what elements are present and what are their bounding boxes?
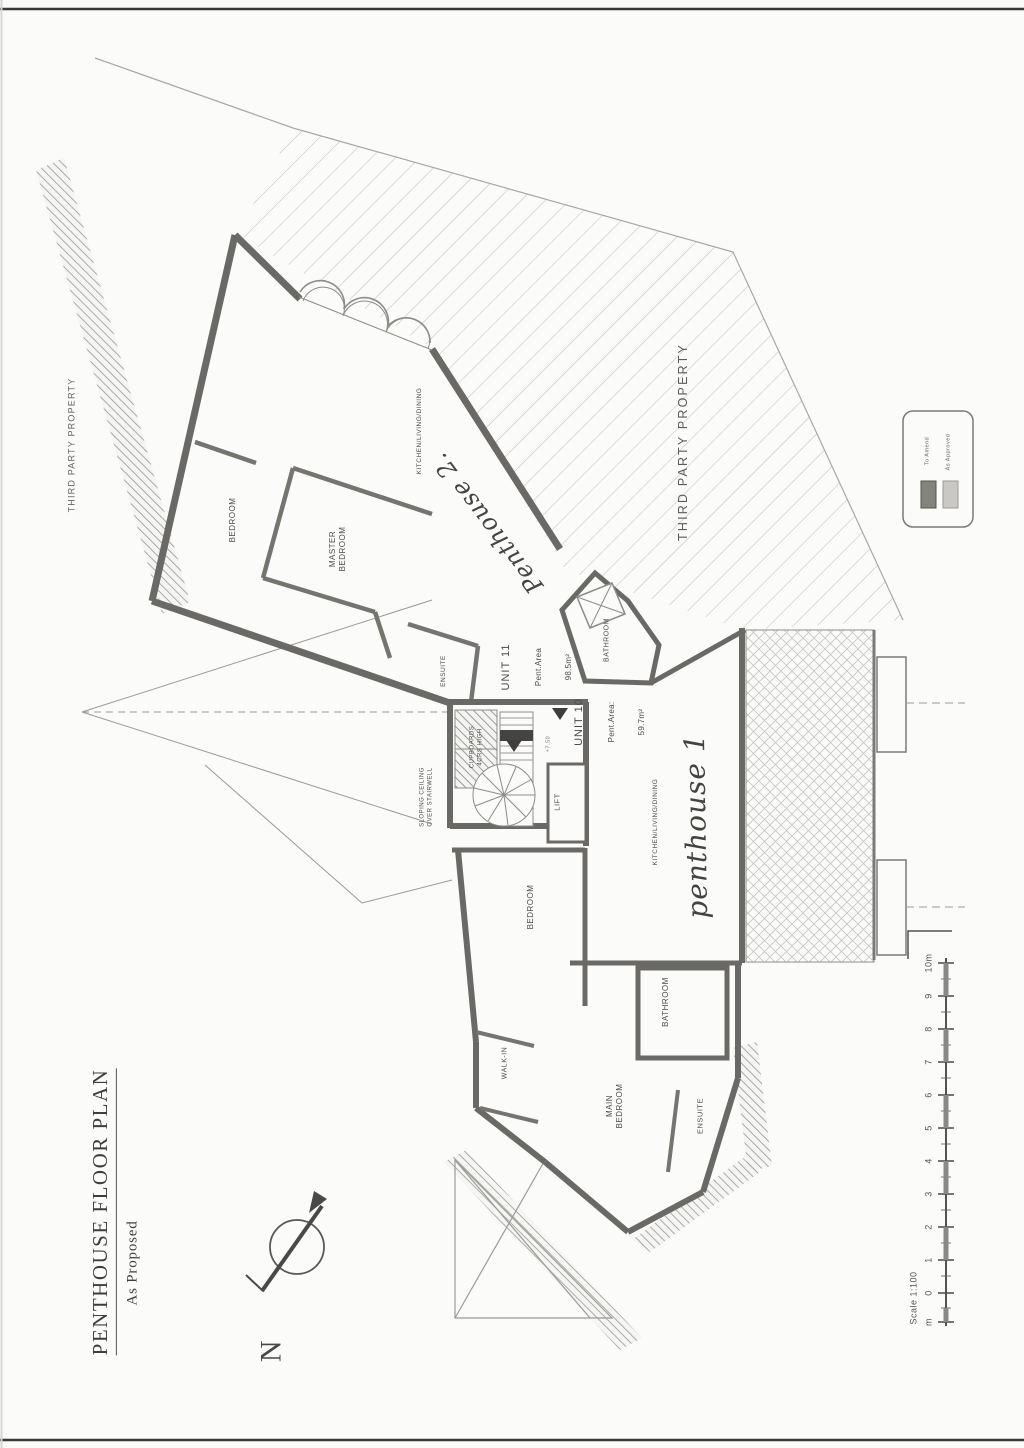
room-label-bathroom-unit10: BATHROOM	[661, 977, 671, 1027]
legend-label-as-approved: As Approved	[946, 434, 953, 471]
scale-tick-m: m	[923, 1318, 934, 1326]
unit10-area-tag: UNIT 10 Pent.Area: 59.7m²	[553, 698, 667, 746]
spiral-stair	[473, 764, 535, 826]
room-label-bedroom-unit10: BEDROOM	[526, 885, 536, 930]
unit11-name: UNIT 11	[500, 644, 514, 691]
scale-tick-8: 8	[923, 1026, 934, 1032]
room-label-kitchen-unit11: KITCHEN/LIVING/DINING	[416, 388, 424, 475]
handwritten-penthouse-1: penthouse 1	[677, 733, 715, 919]
scale-tick-6: 6	[923, 1092, 934, 1098]
unit10-bathroom-walls	[638, 968, 727, 1058]
scanned-floor-plan-sheet: PENTHOUSE FLOOR PLAN As Proposed N THIRD…	[0, 0, 1024, 1448]
cupboards-note: CUPBOARDS 4CRS HIGH	[470, 726, 485, 769]
legend-label-to-amend: To Amend	[925, 437, 932, 465]
sloping-ceiling-note: SLOPING CEILING OVER STAIRWELL	[420, 767, 435, 827]
scale-tick-1: 1	[923, 1257, 934, 1263]
lift-label: LIFT	[552, 793, 561, 810]
scale-tick-10m: 10m	[923, 953, 934, 972]
rooflight-triangle	[455, 1160, 612, 1318]
third-party-property-left-label: THIRD PARTY PROPERTY	[66, 378, 77, 513]
page-subtitle: As Proposed	[124, 1220, 143, 1305]
balcony-box-lower	[877, 860, 906, 955]
terrace	[742, 628, 965, 963]
legend-swatch-to-amend	[921, 481, 936, 508]
roof-outline-lines	[82, 600, 452, 903]
room-label-main-bedroom: MAIN BEDROOM	[605, 1084, 625, 1129]
room-label-ensuite-unit11: ENSUITE	[440, 655, 448, 687]
room-label-kitchen-unit10: KITCHEN/LIVING/DINING	[652, 779, 660, 866]
scale-tick-7: 7	[923, 1059, 934, 1065]
third-party-property-right-label: THIRD PARTY PROPERTY	[676, 343, 692, 541]
room-label-bedroom-unit11: BEDROOM	[228, 498, 238, 543]
unit10-area-label: Pent.Area:	[607, 698, 617, 746]
legend-box	[903, 411, 973, 527]
scale-tick-3: 3	[923, 1191, 934, 1197]
unit10-area-value: 59.7m²	[637, 698, 647, 746]
scale-tick-4: 4	[923, 1158, 934, 1164]
page-title: PENTHOUSE FLOOR PLAN	[87, 1069, 117, 1356]
room-label-bathroom-unit11: BATHROOM	[604, 618, 613, 662]
balcony-box-upper	[877, 657, 906, 752]
unit11-area-value: 98.5m²	[564, 644, 574, 691]
floorplan-drawing	[0, 0, 1024, 1448]
scale-tick-9: 9	[923, 993, 934, 999]
scale-tick-5: 5	[923, 1125, 934, 1131]
room-label-ensuite-unit10: ENSUITE	[695, 1098, 704, 1134]
unit11-area-tag: UNIT 11 Pent.Area 98.5m²	[480, 644, 594, 691]
north-arrow	[246, 1191, 327, 1291]
unit10-name: UNIT 10	[573, 698, 587, 746]
room-label-walk-in: WALK-IN	[502, 1047, 511, 1079]
level-annotation: +7.50	[546, 736, 553, 752]
scale-tick-2: 2	[923, 1224, 934, 1230]
north-label: N	[252, 1340, 290, 1362]
scale-tick-0: 0	[923, 1290, 934, 1296]
scale-caption: Scale 1:100	[908, 1271, 919, 1324]
scale-bar	[938, 958, 954, 1326]
unit11-area-label: Pent.Area	[534, 644, 544, 691]
room-label-master-bedroom: MASTER BEDROOM	[328, 527, 348, 572]
legend-swatch-as-approved	[943, 481, 958, 508]
